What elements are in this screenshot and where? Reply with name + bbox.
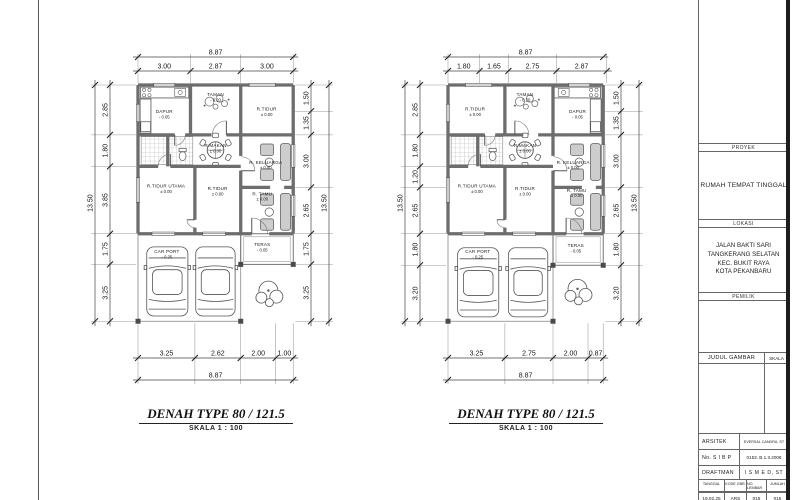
dim-label: 2.87 — [575, 63, 589, 70]
arsitek-label: ARSITEK — [699, 434, 739, 449]
dim-label: 1.50 — [613, 91, 620, 105]
skala-column-divider — [764, 364, 765, 433]
room-label: R. TAMU — [567, 188, 587, 193]
dim-label: 2.85 — [102, 103, 109, 117]
dim-label: 1.50 — [303, 91, 310, 105]
dim-label: 2.62 — [211, 350, 225, 357]
dim-label: 1.35 — [613, 116, 620, 130]
dim-label: 8.87 — [209, 49, 223, 56]
room-elevation: - 0.05 — [257, 247, 268, 252]
kode-gbr-value: ARS — [724, 493, 746, 500]
dim-label: 3.25 — [303, 286, 310, 300]
dim-label: 1.20 — [412, 170, 419, 184]
dim-label: 3.00 — [260, 63, 274, 70]
dim-label: 2.00 — [251, 350, 265, 357]
room-label: TAMAN — [517, 92, 534, 97]
sibp-value: 0153. B.1.II.2008 — [739, 450, 788, 465]
tanggal-value: 19.02.25 — [699, 493, 724, 500]
room-elevation: ± 0.00 — [519, 191, 531, 196]
jumlah-value: 015 — [766, 493, 788, 500]
room-label: R.TIDUR UTAMA — [147, 183, 186, 188]
dim-label: 1.00 — [278, 350, 292, 357]
judul-skala-band: JUDUL GAMBAR SKALA — [699, 352, 788, 364]
dim-label: 2.75 — [522, 350, 536, 357]
draftman-value: I S M E D, ST — [739, 466, 788, 479]
sibp-row: No. S I B P 0153. B.1.II.2008 — [699, 449, 788, 465]
room-elevation: - 0.20 — [210, 97, 221, 102]
no-lembar-value: 015 — [746, 493, 766, 500]
tanggal-label: TANGGAL — [699, 480, 724, 491]
dim-label: 0.87 — [589, 350, 603, 357]
room-elevation: ± 0.00 — [212, 191, 224, 196]
dim-label: 1.80 — [102, 144, 109, 158]
dim-label: 2.65 — [303, 204, 310, 218]
dim-label: 1.80 — [613, 243, 620, 257]
room-label: TERAS — [254, 242, 270, 247]
dim-label: 2.85 — [412, 103, 419, 117]
room-elevation: - 0.05 — [159, 114, 170, 119]
dim-label: 1.75 — [303, 242, 310, 256]
plan-scale-text: SKALA 1 : 100 — [61, 425, 371, 432]
room-label: CAR PORT — [154, 249, 179, 254]
footer-header-row: TANGGAL KODE GBR. NO. LEMBAR JUMLAH — [699, 479, 788, 492]
lokasi-header: LOKASI — [699, 219, 788, 228]
jumlah-label: JUMLAH — [766, 480, 788, 491]
room-label: CAR PORT — [465, 249, 490, 254]
room-label: R.TIDUR — [257, 106, 278, 111]
plan-scale-text: SKALA 1 : 100 — [371, 425, 681, 432]
room-elevation: ± 0.00 — [261, 112, 273, 117]
dim-label: 3.25 — [160, 350, 174, 357]
draftman-label: DRAFTMAN — [699, 466, 739, 479]
dim-label: 1.75 — [102, 242, 109, 256]
plan-title-text: DENAH TYPE 80 / 121.5 — [449, 406, 603, 424]
dim-label: 3.20 — [412, 286, 419, 300]
arsitek-row: ARSITEK EVERSAL CANDRA, ST — [699, 433, 788, 449]
lokasi-value: JALAN BAKTI SARI TANGKERANG SELATAN KEC.… — [699, 228, 788, 291]
dim-label: 3.25 — [470, 350, 484, 357]
floor-plan-left: 3.002.873.008.873.252.622.001.008.872.85… — [75, 20, 385, 396]
pemilik-header: PEMILIK — [699, 292, 788, 301]
dim-label: 8.87 — [519, 372, 533, 379]
room-elevation: - 0.05 — [570, 248, 581, 253]
proyek-value: RUMAH TEMPAT TINGGAL — [699, 152, 788, 218]
room-elevation: ± 0.00 — [160, 189, 172, 194]
room-elevation: - 0.20 — [520, 97, 531, 102]
dim-label: 13.50 — [87, 194, 94, 212]
plan-title-left: DENAH TYPE 80 / 121.5 SKALA 1 : 100 — [61, 405, 371, 432]
room-elevation: ± 0.00 — [210, 149, 222, 154]
room-label: R.MAKAN — [204, 143, 226, 148]
dim-label: 3.25 — [102, 286, 109, 300]
drawing-sheet: { "colors": { "ink": "#1a1a1a", "wall": … — [0, 0, 800, 500]
sibp-label: No. S I B P — [699, 450, 739, 465]
room-elevation: ± 0.00 — [567, 165, 579, 170]
room-label: R. TAMU — [252, 191, 272, 196]
furniture — [455, 87, 601, 317]
dim-label: 13.50 — [397, 194, 404, 212]
room-label: R.TIDUR — [515, 186, 536, 191]
draftman-row: DRAFTMAN I S M E D, ST — [699, 465, 788, 479]
dim-label: 2.00 — [564, 350, 578, 357]
no-lembar-label: NO. LEMBAR — [746, 480, 766, 491]
dim-label: 3.00 — [157, 63, 171, 70]
dim-label: 3.85 — [102, 193, 109, 207]
room-label: R.TIDUR UTAMA — [458, 183, 497, 188]
room-label: DAPUR — [569, 109, 587, 114]
room-label: TAMAN — [207, 92, 224, 97]
room-elevation: ± 0.00 — [471, 189, 483, 194]
plan-title-text: DENAH TYPE 80 / 121.5 — [139, 406, 293, 424]
plan-linework: 3.002.873.008.873.252.622.001.008.872.85… — [87, 49, 333, 384]
judul-gambar-label: JUDUL GAMBAR — [699, 353, 764, 363]
sheet-frame-left — [38, 0, 39, 500]
kode-gbr-label: KODE GBR. — [724, 480, 746, 491]
title-block: PROYEK RUMAH TEMPAT TINGGAL LOKASI JALAN… — [698, 0, 788, 500]
dim-label: 2.87 — [209, 63, 223, 70]
room-label: R. KELUARGA — [249, 160, 283, 165]
dim-label: 3.00 — [613, 154, 620, 168]
room-elevation: ± 0.00 — [571, 193, 583, 198]
dim-label: 1.80 — [412, 243, 419, 257]
room-elevation: - 0.25 — [472, 254, 483, 259]
room-elevation: ± 0.00 — [256, 197, 268, 202]
dim-label: 13.50 — [321, 194, 328, 212]
dim-label: 2.75 — [526, 63, 540, 70]
room-elevation: ± 0.00 — [469, 112, 481, 117]
room-label: R.TIDUR — [208, 186, 229, 191]
dim-label: 1.80 — [457, 63, 471, 70]
dim-label: 8.87 — [209, 372, 223, 379]
floor-plan-right: 1.801.652.752.878.873.252.752.000.878.87… — [385, 20, 695, 396]
room-elevation: ± 0.00 — [519, 149, 531, 154]
dim-label: 3.20 — [613, 286, 620, 300]
dim-label: 2.65 — [613, 204, 620, 218]
room-elevation: ± 0.00 — [260, 165, 272, 170]
dim-label: 8.87 — [519, 49, 533, 56]
title-block-right-border — [786, 0, 790, 500]
room-label: DAPUR — [156, 109, 174, 114]
dim-label: 1.80 — [412, 144, 419, 158]
skala-label: SKALA — [764, 353, 788, 363]
dim-label: 2.65 — [412, 204, 419, 218]
arsitek-value: EVERSAL CANDRA, ST — [739, 434, 788, 449]
plan-title-right: DENAH TYPE 80 / 121.5 SKALA 1 : 100 — [371, 405, 681, 432]
room-label: R. KELUARGA — [557, 160, 591, 165]
room-label: TERAS — [568, 243, 584, 248]
footer-value-row: 19.02.25 ARS 015 015 — [699, 492, 788, 500]
room-label: R.TIDUR — [465, 106, 486, 111]
dim-label: 1.35 — [303, 116, 310, 130]
dim-label: 13.50 — [631, 194, 638, 212]
room-elevation: - 0.25 — [162, 254, 173, 259]
dim-label: 3.00 — [303, 154, 310, 168]
dim-label: 1.65 — [487, 63, 501, 70]
proyek-header: PROYEK — [699, 143, 788, 152]
room-elevation: - 0.05 — [572, 114, 583, 119]
plan-linework: 1.801.652.752.878.873.252.752.000.878.87… — [397, 49, 643, 384]
room-label: R.MAKAN — [514, 143, 536, 148]
